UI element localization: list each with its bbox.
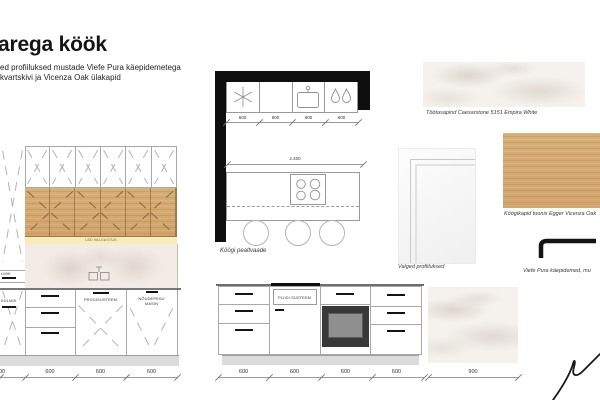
door-swing-cross-icon bbox=[26, 190, 74, 234]
drawer-line bbox=[371, 324, 421, 325]
plan-view-drawing: 600 600 600 600 2.400 Köögi pealtvaade bbox=[215, 71, 371, 263]
dim-label: 600 bbox=[269, 369, 320, 375]
drawer-line bbox=[219, 304, 269, 305]
door-swing-cross-icon bbox=[2, 147, 23, 265]
doors-caption: Valged profiiluksed bbox=[398, 264, 444, 270]
dim-label: 600 bbox=[126, 369, 177, 375]
oven-window bbox=[328, 313, 364, 338]
dim-label: 600 bbox=[320, 369, 371, 375]
door-swing-cross-icon bbox=[52, 149, 72, 185]
handle-mark bbox=[235, 329, 253, 331]
page-title: arega köök bbox=[0, 33, 107, 57]
dim-label: 600 bbox=[371, 369, 422, 375]
cabinet-door bbox=[76, 147, 101, 187]
door-swing-cross-icon bbox=[154, 149, 174, 185]
drawer-line bbox=[371, 306, 421, 307]
toe-kick bbox=[0, 355, 179, 366]
water-drops-icon bbox=[330, 88, 352, 106]
dishwasher-label: MASIN bbox=[145, 301, 158, 306]
drawer-line bbox=[25, 307, 75, 308]
plan-fridge-cell bbox=[227, 82, 260, 112]
door-swing-cross-icon bbox=[103, 149, 123, 185]
door-swing-cross-icon bbox=[128, 149, 148, 185]
door-swing-v-icon bbox=[128, 307, 175, 352]
oven-cabinet bbox=[321, 287, 372, 354]
counter-overhang-dashline bbox=[227, 206, 359, 207]
dishwasher-cabinet: NÕUDEPESU MASIN bbox=[126, 290, 178, 355]
door-profile-line bbox=[415, 164, 476, 264]
oak-material-sample bbox=[503, 133, 600, 208]
handle-mark bbox=[235, 293, 253, 295]
freezer-label: KÜLMIK bbox=[1, 298, 17, 303]
handle-mark bbox=[336, 293, 354, 295]
dimension-line bbox=[428, 377, 518, 378]
hob-system-cabinet: PLIIDI SÜSTEEM bbox=[270, 287, 321, 354]
handle-mark bbox=[275, 309, 284, 311]
cabinet-door bbox=[101, 147, 126, 187]
dim-label: 600 bbox=[259, 115, 292, 120]
tall-fridge-unit: LMIK KÜLMIK bbox=[0, 146, 26, 356]
handle-mark bbox=[387, 330, 405, 332]
door-swing-cross-icon bbox=[27, 149, 47, 185]
subtitle-line-2: kvartskivi ja Vicenza Oak ülakapid bbox=[0, 73, 121, 82]
worktop-material-sample bbox=[423, 62, 585, 107]
drawer-cabinet bbox=[25, 290, 76, 355]
handle-mark bbox=[146, 291, 158, 293]
cabinet-door bbox=[50, 147, 75, 187]
upper-cabinets-row bbox=[25, 146, 177, 188]
hob-icon bbox=[290, 174, 326, 205]
dim-label: 600 bbox=[292, 115, 325, 120]
drawer-line bbox=[321, 304, 371, 305]
dim-label: 600 bbox=[25, 369, 75, 375]
handle-icon bbox=[538, 237, 596, 259]
plan-caption: Köögi pealtvaade bbox=[220, 248, 266, 254]
dimension-line bbox=[227, 164, 363, 165]
led-strip: LED VALGUSTUS bbox=[25, 237, 177, 244]
plan-island bbox=[226, 172, 360, 221]
handle-mark bbox=[41, 312, 59, 314]
waste-system-cabinet: PRÜGISÜSTEEM bbox=[75, 290, 127, 355]
dim-label: 600 bbox=[218, 369, 269, 375]
drawer-line bbox=[25, 327, 75, 328]
handle-mark bbox=[235, 310, 253, 312]
handles-caption: Viefe Pura käepidemed, mu bbox=[523, 268, 591, 274]
drawer-cabinet bbox=[219, 287, 270, 354]
island-side-panel-sample bbox=[428, 287, 518, 363]
cabinet-door bbox=[152, 147, 176, 187]
kitchen-design-board: arega köök ed profiiluksed mustade Viefe… bbox=[0, 0, 600, 400]
plan-sink-cell bbox=[293, 82, 326, 112]
plan-dishwasher-cell bbox=[325, 82, 357, 112]
wall-left bbox=[215, 71, 226, 242]
wall-top bbox=[222, 71, 370, 82]
island-cabinets-row: PLIIDI SÜSTEEM bbox=[218, 286, 422, 355]
backsplash bbox=[25, 244, 178, 288]
wall-right bbox=[358, 71, 370, 110]
handle-mark bbox=[387, 312, 405, 314]
handle-mark bbox=[41, 332, 59, 334]
dim-label: 600 bbox=[226, 115, 259, 120]
plan-counter-run bbox=[226, 82, 358, 113]
toe-kick bbox=[222, 355, 419, 365]
bar-stools-icons bbox=[243, 219, 347, 249]
dim-label: 600 bbox=[325, 115, 358, 120]
signature-mark bbox=[546, 352, 600, 400]
cabinet-door bbox=[126, 147, 151, 187]
oak-cabinets-row bbox=[25, 188, 177, 237]
hob-system-label: PLIIDI SÜSTEEM bbox=[278, 295, 311, 300]
island-elevation-drawing: PLIIDI SÜSTEEM 600 600 600 bbox=[215, 283, 427, 383]
door-swing-cross-icon bbox=[78, 149, 98, 185]
drawer-cabinet bbox=[371, 287, 421, 354]
faucet-icon bbox=[88, 266, 110, 282]
subtitle-line-1: ed profiiluksed mustade Viefe Pura käepi… bbox=[0, 63, 181, 72]
dim-label: 900 bbox=[428, 369, 518, 375]
sink-icon bbox=[295, 85, 321, 110]
door-swing-cross-icon bbox=[126, 190, 174, 234]
divider-line bbox=[0, 282, 25, 283]
handle-mark bbox=[93, 292, 109, 294]
door-swing-cross-icon bbox=[77, 304, 124, 352]
white-door-sample bbox=[398, 148, 476, 264]
handle-mark bbox=[2, 277, 16, 279]
plan-cabinet-cell bbox=[260, 82, 293, 112]
dim-label: 600 bbox=[75, 369, 126, 375]
oak-caption: Köögikapid toonis Egger Vicenza Oak bbox=[504, 211, 596, 217]
handle-mark bbox=[41, 295, 59, 297]
snowflake-icon bbox=[232, 86, 254, 108]
door-swing-cross-icon bbox=[76, 190, 124, 234]
worktop-caption: Töötasapind Caesarstone 5151 Empira Whit… bbox=[426, 110, 537, 116]
cabinet-door bbox=[25, 147, 50, 187]
dim-label: 2.400 bbox=[227, 156, 363, 161]
drawer-line bbox=[219, 323, 269, 324]
dimension-line bbox=[0, 377, 178, 378]
fridge-label: LMIK bbox=[1, 271, 11, 276]
handle-mark bbox=[2, 306, 16, 308]
oven bbox=[322, 306, 370, 347]
wall-elevation-drawing: LMIK KÜLMIK LE bbox=[0, 146, 182, 388]
handle-mark bbox=[387, 294, 405, 296]
waste-system-label: PRÜGISÜSTEEM bbox=[75, 297, 126, 302]
